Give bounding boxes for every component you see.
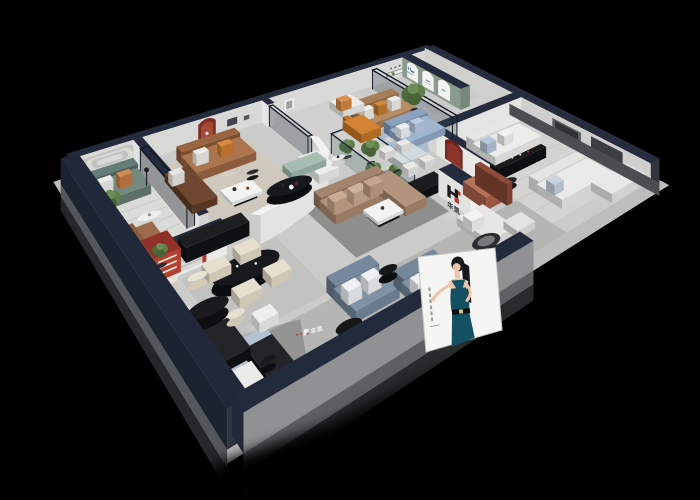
floor-lamp-head bbox=[144, 167, 149, 172]
showroom-3d-render: 华凯 华凯 H bbox=[0, 0, 700, 500]
poster-caption-mark bbox=[428, 288, 430, 292]
woman-buckle bbox=[459, 309, 463, 313]
plant-foliage bbox=[156, 243, 163, 250]
poster-caption-mark bbox=[430, 305, 432, 309]
glass-panel-tall-pane bbox=[453, 116, 457, 140]
salmon-panel-face bbox=[507, 182, 512, 206]
green-arch-wall-face bbox=[461, 86, 470, 110]
niche-plant bbox=[392, 72, 395, 75]
showroom-scene bbox=[0, 0, 700, 500]
arch-figurine bbox=[205, 132, 208, 135]
poster-caption-mark bbox=[430, 311, 432, 315]
table-decor bbox=[232, 187, 236, 191]
table-decor bbox=[246, 187, 249, 190]
table-decor bbox=[381, 206, 385, 210]
glassware bbox=[236, 265, 239, 268]
vase bbox=[281, 183, 285, 187]
poster-caption-mark bbox=[429, 299, 431, 303]
table-card bbox=[289, 185, 294, 190]
table-decor bbox=[337, 155, 340, 158]
shelf-logo-mark bbox=[527, 151, 529, 153]
table-decor bbox=[148, 213, 151, 216]
plant-foliage bbox=[408, 83, 419, 94]
poster-caption-mark bbox=[431, 317, 433, 321]
vase bbox=[295, 182, 299, 186]
woman-neck bbox=[454, 271, 460, 278]
glassware bbox=[254, 262, 257, 265]
poster-caption-mark bbox=[429, 294, 431, 298]
